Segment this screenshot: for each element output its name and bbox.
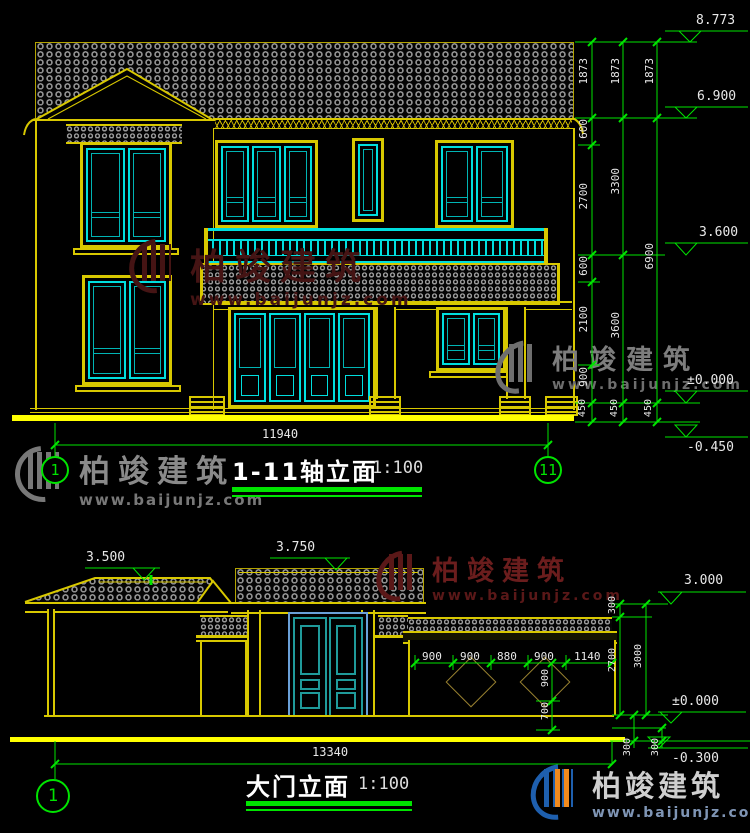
floor-line bbox=[30, 412, 575, 413]
watermark-brand: 柏竣建筑 bbox=[432, 549, 623, 588]
window-leaf bbox=[88, 281, 126, 379]
level-mark: 3.600 bbox=[699, 225, 738, 240]
dim-label: 3000 bbox=[633, 644, 644, 668]
gate-door-leaf bbox=[293, 617, 327, 717]
dim-label: 1140 bbox=[574, 650, 601, 663]
level-mark: 3.750 bbox=[276, 540, 315, 555]
balcony-tile-skirt bbox=[200, 263, 560, 305]
watermark-url: www.baijunjz.com bbox=[79, 491, 264, 509]
gate-post-cap bbox=[243, 612, 263, 614]
dim-label: 1873 bbox=[609, 58, 622, 85]
window-sill bbox=[73, 248, 179, 255]
dim-label: 450 bbox=[643, 399, 654, 417]
porch-column bbox=[506, 307, 526, 399]
dim-label: 450 bbox=[577, 399, 588, 417]
window-leaf bbox=[358, 144, 378, 216]
skirt-end-cap bbox=[200, 263, 203, 301]
window-2f-right bbox=[435, 140, 514, 228]
dim-label: 450 bbox=[609, 399, 620, 417]
level-mark: 3.000 bbox=[684, 573, 723, 588]
watermark-logo-colored: 柏竣建筑 www.baijunjz.com bbox=[532, 763, 750, 821]
drawing-title-gate: 大门立面 bbox=[246, 767, 350, 802]
door-panel bbox=[300, 625, 320, 675]
level-mark: 8.773 bbox=[696, 13, 735, 28]
door-leaf bbox=[269, 313, 301, 402]
dim-label: 900 bbox=[460, 650, 480, 663]
dim-label: 880 bbox=[497, 650, 517, 663]
railing-bottom-rail bbox=[205, 255, 548, 263]
column-base bbox=[189, 396, 225, 416]
coping-band bbox=[196, 640, 252, 642]
window-leaf bbox=[476, 146, 508, 222]
column-base bbox=[545, 396, 578, 416]
dim-label: 2100 bbox=[577, 306, 590, 333]
ground-line-bottom bbox=[10, 737, 625, 742]
window-2f-narrow bbox=[352, 138, 384, 222]
window-leaf bbox=[129, 281, 167, 379]
door-panel bbox=[300, 692, 320, 709]
window-2f-left bbox=[215, 140, 318, 228]
drawing-scale: 1:100 bbox=[358, 774, 409, 794]
dim-label: 700 bbox=[540, 702, 551, 720]
drawing-scale: 1:100 bbox=[372, 458, 423, 478]
side-wall-edge bbox=[200, 642, 202, 715]
watermark-url: www.baijunjz.com bbox=[592, 805, 750, 821]
door-panel bbox=[336, 625, 356, 675]
dim-label: 900 bbox=[540, 669, 551, 687]
dim-label: 600 bbox=[577, 119, 590, 139]
gate-door bbox=[288, 612, 368, 722]
railing-balusters bbox=[205, 241, 548, 255]
column-base bbox=[369, 396, 401, 416]
title-underline bbox=[232, 495, 422, 497]
watermark-brand: 柏竣建筑 bbox=[592, 763, 750, 805]
window-2f-wing bbox=[80, 142, 172, 248]
level-mark: -0.450 bbox=[687, 440, 734, 455]
level-mark: ±0.000 bbox=[672, 694, 719, 709]
dim-label: 1873 bbox=[577, 58, 590, 85]
door-leaf bbox=[234, 313, 266, 402]
window-1f-wing bbox=[82, 275, 172, 385]
window-sill bbox=[75, 385, 181, 392]
window-leaf bbox=[221, 146, 249, 222]
main-roof bbox=[35, 42, 574, 120]
balcony-railing bbox=[205, 228, 548, 263]
pavilion-roof bbox=[25, 578, 228, 603]
railing-top-rail bbox=[205, 228, 548, 241]
window-leaf bbox=[441, 146, 473, 222]
title-underline bbox=[246, 801, 412, 806]
gate-roof-ridge-line bbox=[239, 572, 418, 573]
window-leaf bbox=[442, 313, 470, 365]
window-leaf bbox=[86, 148, 125, 242]
watermark-url: www.baijunjz.com bbox=[432, 588, 623, 604]
porch-column bbox=[376, 307, 396, 399]
dim-label: 900 bbox=[577, 367, 590, 387]
dim-label: 2700 bbox=[607, 648, 618, 672]
dim-label: 300 bbox=[650, 738, 661, 756]
axis-bubble-1: 1 bbox=[36, 779, 70, 813]
drawing-title-elevation: 1-11轴立面 bbox=[232, 452, 378, 487]
level-mark: ±0.000 bbox=[687, 373, 734, 388]
axis-bubble-11: 11 bbox=[534, 456, 562, 484]
eave-bracket-left bbox=[24, 119, 35, 135]
dim-label: 300 bbox=[622, 738, 633, 756]
title-underline bbox=[246, 809, 412, 811]
floor-line bbox=[30, 408, 575, 409]
window-leaf bbox=[252, 146, 280, 222]
door-leaf bbox=[338, 313, 370, 402]
window-leaf bbox=[473, 313, 501, 365]
door-panel bbox=[336, 692, 356, 709]
cad-canvas: 柏竣建筑 www.baijunjz.com 柏竣建筑 www.baijunjz.… bbox=[0, 0, 750, 833]
window-leaf bbox=[284, 146, 312, 222]
door-panel bbox=[336, 679, 356, 691]
gate-door-leaf bbox=[329, 617, 363, 717]
dim-label: 600 bbox=[577, 256, 590, 276]
title-underline bbox=[232, 487, 422, 492]
overall-width-dim: 11940 bbox=[262, 427, 298, 441]
axis-bubble-1: 1 bbox=[41, 456, 69, 484]
gate-post bbox=[247, 610, 261, 715]
railing-end-post bbox=[544, 228, 548, 263]
level-mark: -0.300 bbox=[672, 751, 719, 766]
wing-window-canopy bbox=[66, 124, 182, 144]
dim-label: 900 bbox=[534, 650, 554, 663]
baijun-logo-icon bbox=[532, 763, 584, 821]
dim-label: 1873 bbox=[643, 58, 656, 85]
pavilion-post bbox=[47, 609, 55, 716]
skirt-end-cap bbox=[557, 263, 560, 301]
ground-line-top bbox=[12, 415, 574, 421]
level-mark: 6.900 bbox=[697, 89, 736, 104]
dim-label: 6900 bbox=[643, 243, 656, 270]
column-base bbox=[499, 396, 531, 416]
dim-label: 2700 bbox=[577, 183, 590, 210]
window-1f-right bbox=[436, 307, 506, 371]
door-leaf bbox=[304, 313, 336, 402]
dim-label: 3300 bbox=[609, 168, 622, 195]
side-wall-coping-left bbox=[200, 615, 248, 637]
coping-band bbox=[196, 635, 252, 638]
dim-label: 300 bbox=[607, 596, 618, 614]
dim-label: 3600 bbox=[609, 312, 622, 339]
window-sill bbox=[429, 371, 513, 378]
overall-width-dim: 13340 bbox=[312, 745, 348, 759]
window-leaf bbox=[128, 148, 167, 242]
door-1f-glazed bbox=[228, 307, 376, 408]
door-panel bbox=[300, 679, 320, 691]
railing-end-post bbox=[204, 228, 208, 263]
level-mark: 3.500 bbox=[86, 550, 125, 565]
dim-label: 900 bbox=[422, 650, 442, 663]
gate-roof bbox=[235, 568, 424, 604]
pavilion-eave-board bbox=[25, 602, 228, 613]
